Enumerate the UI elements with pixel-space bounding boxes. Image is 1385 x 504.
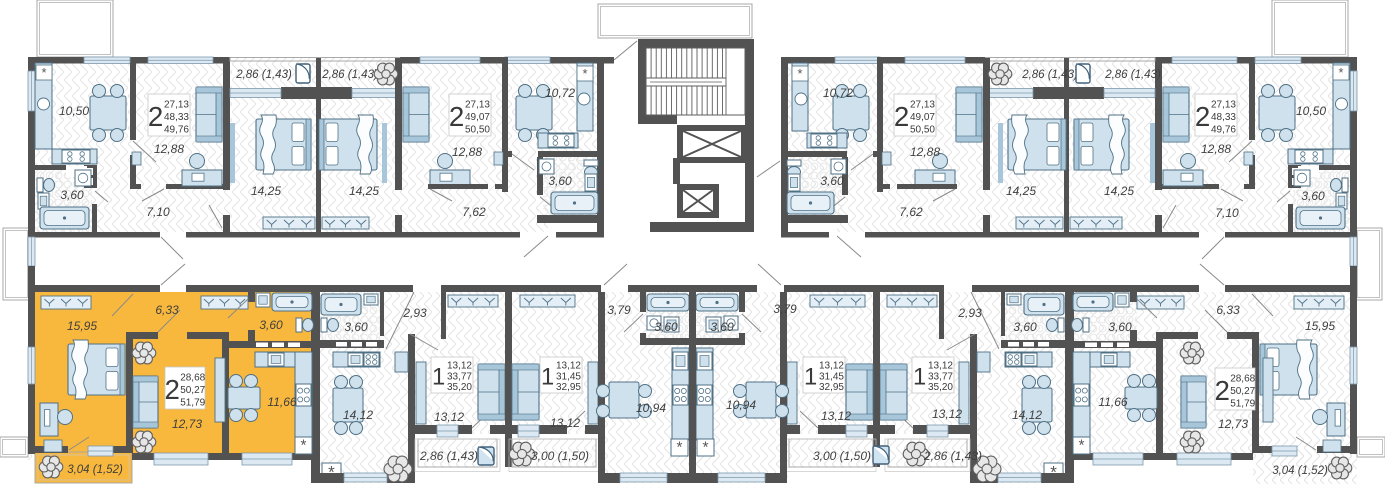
svg-text:1: 1 <box>432 363 445 390</box>
svg-text:13,12: 13,12 <box>550 416 580 430</box>
svg-text:2,86 (1,43): 2,86 (1,43) <box>923 449 982 463</box>
svg-text:49,76: 49,76 <box>164 125 189 136</box>
svg-text:10,72: 10,72 <box>823 86 853 100</box>
svg-text:3,79: 3,79 <box>773 302 797 316</box>
svg-text:*: * <box>677 439 683 456</box>
svg-text:3,60: 3,60 <box>1108 320 1132 334</box>
svg-text:14,25: 14,25 <box>1104 184 1134 198</box>
svg-text:2: 2 <box>894 101 909 132</box>
svg-text:14,25: 14,25 <box>1006 184 1036 198</box>
svg-text:3,60: 3,60 <box>259 318 283 332</box>
svg-text:1: 1 <box>804 363 817 390</box>
svg-text:3,04 (1,52): 3,04 (1,52) <box>1272 465 1328 477</box>
svg-text:13,12: 13,12 <box>434 410 464 424</box>
svg-text:7,10: 7,10 <box>146 205 170 219</box>
svg-text:27,13: 27,13 <box>1211 99 1236 110</box>
svg-text:12,88: 12,88 <box>452 145 482 159</box>
svg-text:33,77: 33,77 <box>928 371 953 382</box>
svg-text:1: 1 <box>913 363 926 390</box>
svg-text:14,12: 14,12 <box>1012 408 1042 422</box>
svg-text:32,95: 32,95 <box>556 382 581 393</box>
svg-text:3,00 (1,50): 3,00 (1,50) <box>531 449 589 463</box>
svg-text:10,72: 10,72 <box>545 86 575 100</box>
svg-text:2,86 (1,43): 2,86 (1,43) <box>321 69 378 81</box>
svg-text:51,79: 51,79 <box>1230 399 1255 410</box>
svg-text:13,12: 13,12 <box>556 361 581 372</box>
svg-text:10,94: 10,94 <box>636 401 666 415</box>
svg-text:12,88: 12,88 <box>154 142 184 156</box>
svg-text:51,79: 51,79 <box>180 398 205 409</box>
svg-text:3,60: 3,60 <box>710 320 734 334</box>
svg-text:3,60: 3,60 <box>654 320 678 334</box>
svg-text:12,88: 12,88 <box>1201 142 1231 156</box>
svg-text:10,50: 10,50 <box>59 104 89 118</box>
svg-text:50,50: 50,50 <box>910 125 935 136</box>
svg-text:31,45: 31,45 <box>556 371 581 382</box>
svg-text:27,13: 27,13 <box>465 99 490 110</box>
svg-text:48,33: 48,33 <box>164 112 189 123</box>
svg-text:13,12: 13,12 <box>447 361 472 372</box>
svg-text:2: 2 <box>164 374 179 405</box>
svg-text:31,45: 31,45 <box>819 371 844 382</box>
svg-text:3,60: 3,60 <box>1013 320 1037 334</box>
svg-text:13,12: 13,12 <box>932 407 962 421</box>
svg-text:3,79: 3,79 <box>607 303 631 317</box>
svg-text:14,12: 14,12 <box>343 408 373 422</box>
svg-text:14,25: 14,25 <box>251 184 281 198</box>
svg-text:27,13: 27,13 <box>164 99 189 110</box>
svg-text:12,88: 12,88 <box>910 145 940 159</box>
svg-text:48,33: 48,33 <box>1211 112 1236 123</box>
svg-text:2,86 (1,43): 2,86 (1,43) <box>419 449 478 463</box>
svg-text:49,07: 49,07 <box>465 112 490 123</box>
svg-text:2,93: 2,93 <box>957 306 982 320</box>
svg-text:2,86 (1,43): 2,86 (1,43) <box>1104 69 1161 81</box>
svg-text:*: * <box>41 65 46 80</box>
svg-text:6,33: 6,33 <box>1216 303 1240 317</box>
svg-text:35,20: 35,20 <box>447 382 472 393</box>
svg-text:50,27: 50,27 <box>1230 386 1255 397</box>
svg-text:28,68: 28,68 <box>180 372 205 383</box>
svg-text:15,95: 15,95 <box>1305 319 1335 333</box>
svg-text:3,60: 3,60 <box>344 320 368 334</box>
svg-text:13,12: 13,12 <box>819 361 844 372</box>
svg-text:2,86 (1,43): 2,86 (1,43) <box>235 69 292 81</box>
svg-text:12,73: 12,73 <box>1218 417 1248 431</box>
svg-text:13,12: 13,12 <box>928 361 953 372</box>
svg-text:2: 2 <box>1195 101 1210 132</box>
svg-text:49,76: 49,76 <box>1211 125 1236 136</box>
svg-text:7,10: 7,10 <box>1215 206 1239 220</box>
svg-text:35,20: 35,20 <box>928 382 953 393</box>
svg-text:50,50: 50,50 <box>465 125 490 136</box>
svg-text:7,62: 7,62 <box>899 205 923 219</box>
svg-text:1: 1 <box>541 363 554 390</box>
svg-text:3,04 (1,52): 3,04 (1,52) <box>67 464 123 476</box>
svg-text:33,77: 33,77 <box>447 371 472 382</box>
svg-text:3,00 (1,50): 3,00 (1,50) <box>813 449 871 463</box>
svg-text:12,73: 12,73 <box>172 417 202 431</box>
svg-text:15,95: 15,95 <box>67 319 97 333</box>
svg-text:*: * <box>301 437 307 454</box>
svg-text:3,60: 3,60 <box>60 188 84 202</box>
svg-text:50,27: 50,27 <box>180 385 205 396</box>
svg-text:7,62: 7,62 <box>462 205 486 219</box>
svg-text:2,86 (1,43): 2,86 (1,43) <box>1021 69 1078 81</box>
svg-text:10,50: 10,50 <box>1296 104 1326 118</box>
svg-text:2: 2 <box>148 101 163 132</box>
svg-text:2: 2 <box>1214 375 1229 406</box>
svg-text:28,68: 28,68 <box>1230 373 1255 384</box>
svg-text:3,60: 3,60 <box>548 174 572 188</box>
svg-text:10,94: 10,94 <box>726 398 756 412</box>
svg-text:11,66: 11,66 <box>267 395 296 409</box>
svg-text:27,13: 27,13 <box>910 99 935 110</box>
svg-text:2,93: 2,93 <box>402 306 427 320</box>
svg-text:14,25: 14,25 <box>349 184 379 198</box>
svg-text:3,60: 3,60 <box>820 174 844 188</box>
svg-text:6,33: 6,33 <box>155 303 179 317</box>
svg-text:3,60: 3,60 <box>1301 189 1325 203</box>
svg-text:2: 2 <box>449 101 464 132</box>
svg-text:32,95: 32,95 <box>819 382 844 393</box>
svg-text:*: * <box>582 66 587 81</box>
svg-text:13,12: 13,12 <box>821 409 851 423</box>
svg-text:11,66: 11,66 <box>1098 395 1127 409</box>
svg-text:49,07: 49,07 <box>910 112 935 123</box>
